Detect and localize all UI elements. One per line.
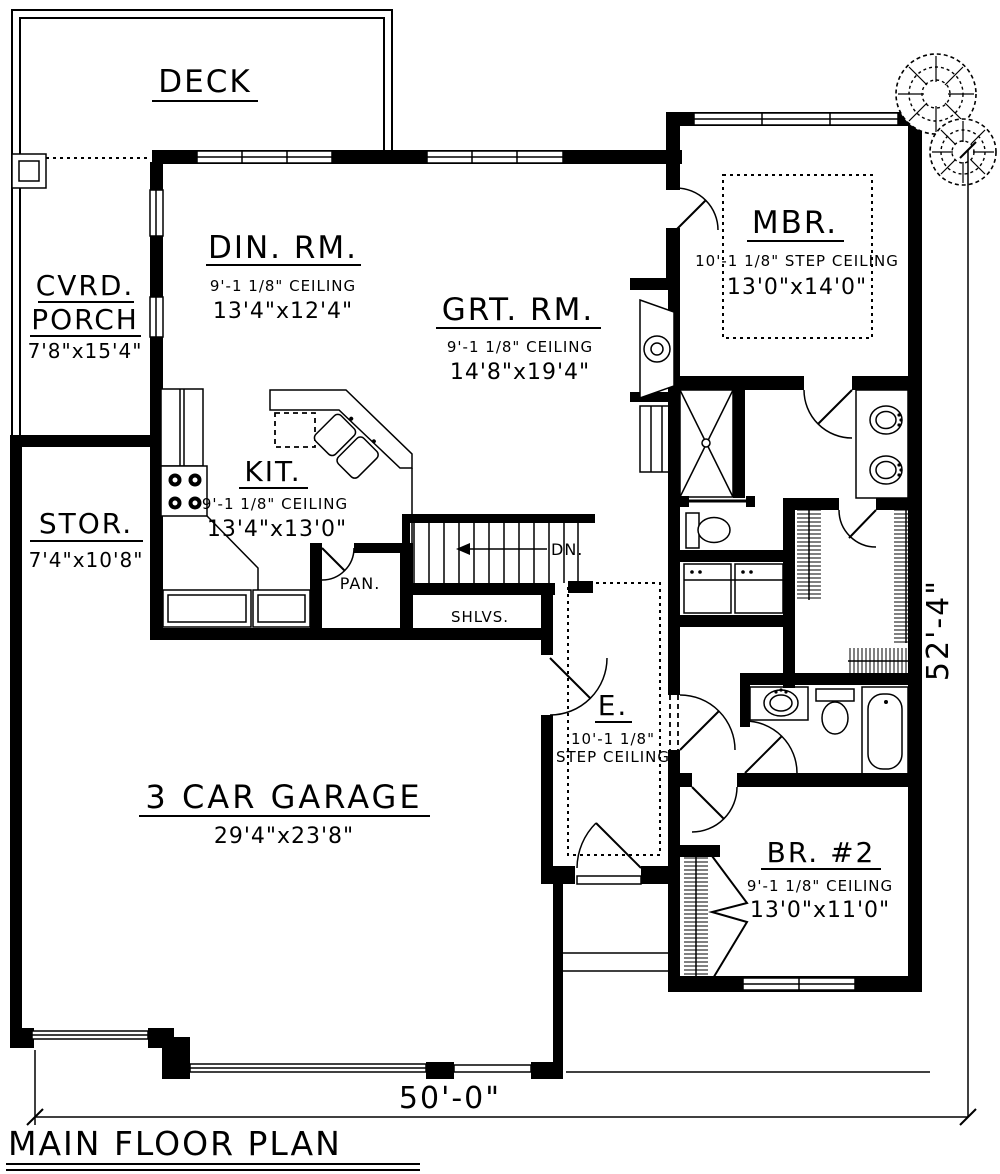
label-deck: DECK <box>158 64 251 100</box>
washer-dryer <box>684 564 783 613</box>
label-dining: DIN. RM. <box>208 230 358 266</box>
label-storage: STOR. <box>39 507 133 540</box>
labels: DECK CVRD. PORCH 7'8"x15'4" DIN. RM. 9'-… <box>6 64 956 1170</box>
bathtub <box>862 687 908 775</box>
window-porch-wall-2 <box>150 297 163 337</box>
door-bath2 <box>745 721 797 773</box>
door-mbr-hall <box>804 390 852 438</box>
ceiling-great-room: 9'-1 1/8" CEILING <box>447 338 593 356</box>
label-great-room: GRT. RM. <box>442 292 594 328</box>
floor-plan-page: DECK CVRD. PORCH 7'8"x15'4" DIN. RM. 9'-… <box>0 0 1000 1174</box>
floor-plan-drawing: DECK CVRD. PORCH 7'8"x15'4" DIN. RM. 9'-… <box>0 0 1000 1174</box>
bifold-door <box>712 856 747 980</box>
kitchen-base-cabinets <box>163 590 310 627</box>
wall-pantry-left <box>310 543 322 640</box>
door-front <box>577 823 641 868</box>
size-great-room: 14'8"x19'4" <box>450 360 590 385</box>
wall-bath2-top <box>740 673 922 685</box>
bath2 <box>750 687 908 775</box>
size-dining: 13'4"x12'4" <box>213 299 353 324</box>
ceiling-dining: 9'-1 1/8" CEILING <box>210 277 356 295</box>
size-bedroom2: 13'0"x11'0" <box>750 898 890 923</box>
window-dining <box>197 151 332 163</box>
br2-closet <box>684 852 747 980</box>
toilet-master <box>686 513 730 548</box>
wall-wic-left <box>783 498 795 688</box>
ceiling-kitchen: 9'-1 1/8" CEILING <box>202 495 348 513</box>
bath2-sink <box>764 690 798 716</box>
label-master-bedroom: MBR. <box>752 205 838 241</box>
window-great-room <box>427 151 563 163</box>
ceiling-bedroom2: 9'-1 1/8" CEILING <box>747 877 893 895</box>
window-master-bedroom <box>694 113 898 125</box>
door-hall-opening <box>666 695 735 750</box>
size-porch: 7'8"x15'4" <box>28 339 143 363</box>
page-title: MAIN FLOOR PLAN <box>8 1124 342 1163</box>
door-walk-in-closet <box>839 510 876 547</box>
door-mbr-entry <box>676 188 718 230</box>
label-pantry: PAN. <box>340 574 381 593</box>
window-bedroom2 <box>743 978 855 990</box>
wall-storage-top <box>10 435 163 447</box>
kitchen-counter <box>207 390 412 590</box>
front-door-sill <box>577 876 641 884</box>
cooktop <box>161 466 207 516</box>
size-garage: 29'4"x23'8" <box>214 824 354 849</box>
wall-west-exterior <box>10 435 22 1048</box>
kitchen-island-dashed <box>275 413 315 447</box>
wall-garage-top <box>152 628 553 640</box>
label-entry: E. <box>598 689 629 722</box>
size-master-bedroom: 13'0"x14'0" <box>727 275 867 300</box>
master-vanity <box>856 390 908 498</box>
label-stairs-down: DN. <box>551 540 583 559</box>
size-storage: 7'4"x10'8" <box>29 548 144 572</box>
label-porch-line2: PORCH <box>31 303 139 336</box>
ceiling-entry-type: STEP CEILING <box>556 748 670 766</box>
tree-shrub-2 <box>930 119 996 185</box>
label-porch-line1: CVRD. <box>36 269 135 302</box>
size-kitchen: 13'4"x13'0" <box>207 517 347 542</box>
fireplace <box>640 300 674 398</box>
ceiling-master-bedroom: 10'-1 1/8" STEP CEILING <box>695 252 899 270</box>
wall-pantry-right <box>400 543 413 640</box>
label-garage: 3 CAR GARAGE <box>145 778 422 816</box>
refrigerator <box>161 389 203 466</box>
stairs-rail <box>402 514 595 523</box>
garage-doors <box>32 1031 531 1072</box>
window-porch-wall-1 <box>150 190 163 236</box>
dimension-width: 50'-0" <box>399 1081 501 1116</box>
label-kitchen: KIT. <box>244 455 301 488</box>
dimension-depth: 52'-4" <box>921 579 956 681</box>
label-bedroom2: BR. #2 <box>767 836 876 869</box>
wall-stoop-left <box>553 872 563 1079</box>
walk-in-closet <box>797 510 918 674</box>
label-shelves: SHLVS. <box>451 608 509 626</box>
wall-mbr-bottom <box>680 376 804 390</box>
ceiling-entry-height: 10'-1 1/8" <box>571 730 655 748</box>
toilet-bath2 <box>816 689 854 734</box>
door-bedroom2 <box>692 787 737 832</box>
